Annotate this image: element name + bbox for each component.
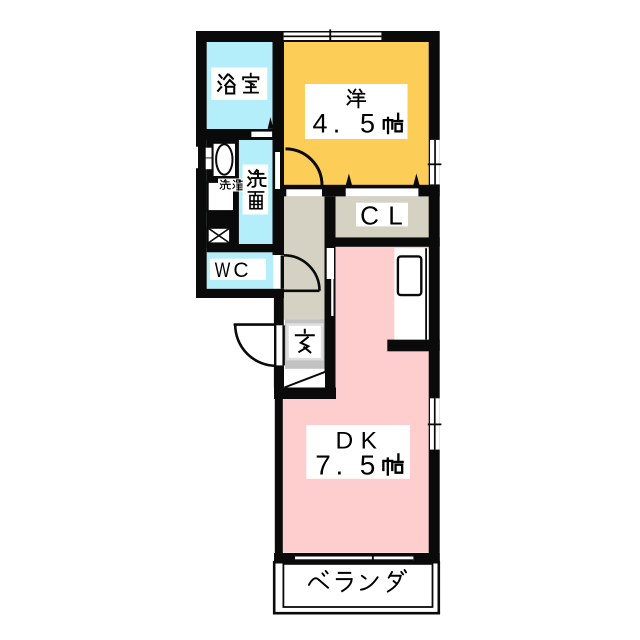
svg-text:7: 7 bbox=[315, 450, 331, 481]
svg-text:5: 5 bbox=[360, 450, 376, 481]
svg-text:.: . bbox=[336, 450, 344, 481]
svg-text:4: 4 bbox=[312, 109, 327, 139]
svg-text:C: C bbox=[360, 201, 379, 231]
svg-text:C: C bbox=[233, 259, 248, 282]
svg-text:.: . bbox=[333, 109, 341, 139]
svg-text:W: W bbox=[215, 259, 231, 282]
svg-text:L: L bbox=[388, 201, 402, 231]
svg-text:5: 5 bbox=[360, 109, 375, 139]
